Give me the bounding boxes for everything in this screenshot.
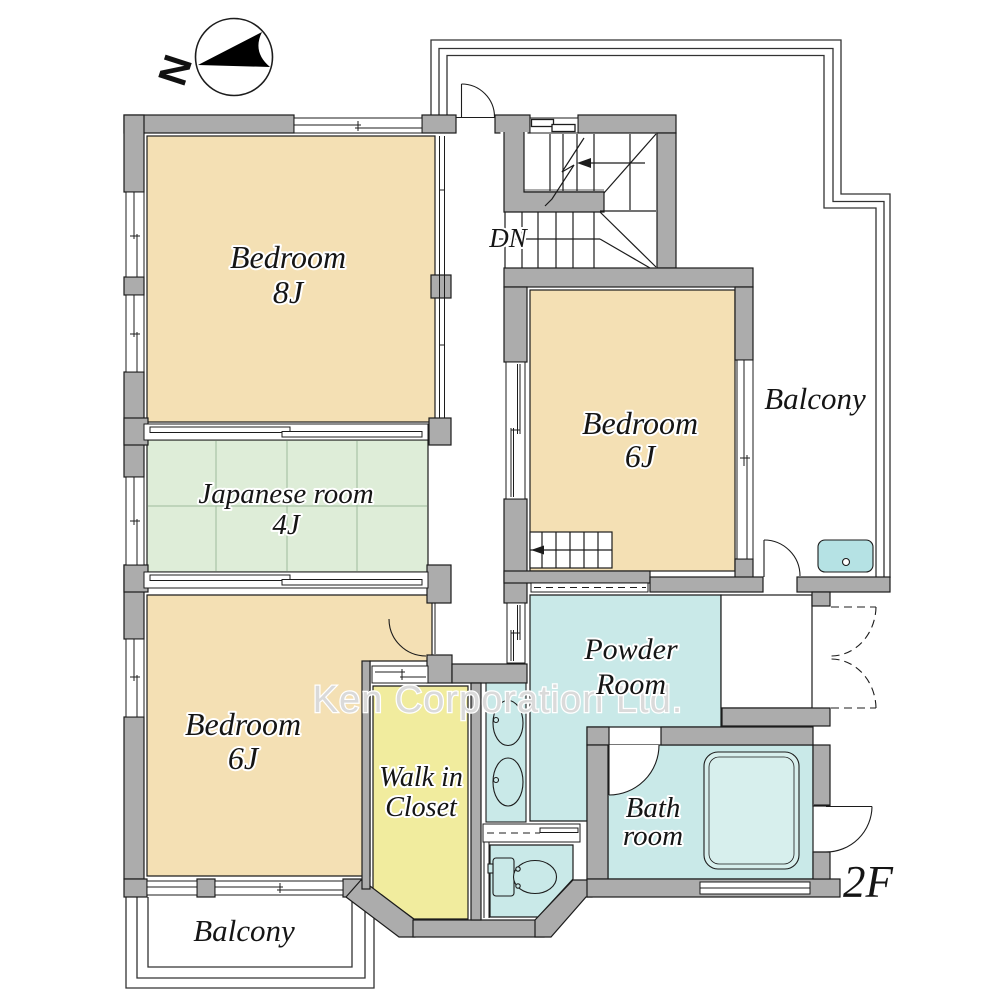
- svg-text:Closet: Closet: [385, 792, 458, 823]
- svg-text:6J: 6J: [228, 740, 260, 776]
- svg-text:Balcony: Balcony: [764, 381, 866, 416]
- svg-text:room: room: [623, 820, 683, 852]
- svg-text:Bedroom: Bedroom: [230, 239, 346, 275]
- svg-text:Japanese room: Japanese room: [198, 478, 373, 510]
- svg-text:Bedroom: Bedroom: [185, 706, 301, 742]
- svg-text:4J: 4J: [272, 509, 301, 541]
- svg-text:Walk in: Walk in: [379, 762, 463, 793]
- svg-text:8J: 8J: [273, 274, 305, 310]
- svg-text:Balcony: Balcony: [193, 913, 295, 948]
- svg-text:Powder: Powder: [583, 633, 678, 666]
- svg-text:DN: DN: [488, 223, 528, 253]
- svg-text:Bedroom: Bedroom: [582, 405, 698, 441]
- svg-text:2F: 2F: [843, 857, 894, 907]
- svg-text:Room: Room: [595, 668, 666, 701]
- svg-text:6J: 6J: [625, 438, 657, 474]
